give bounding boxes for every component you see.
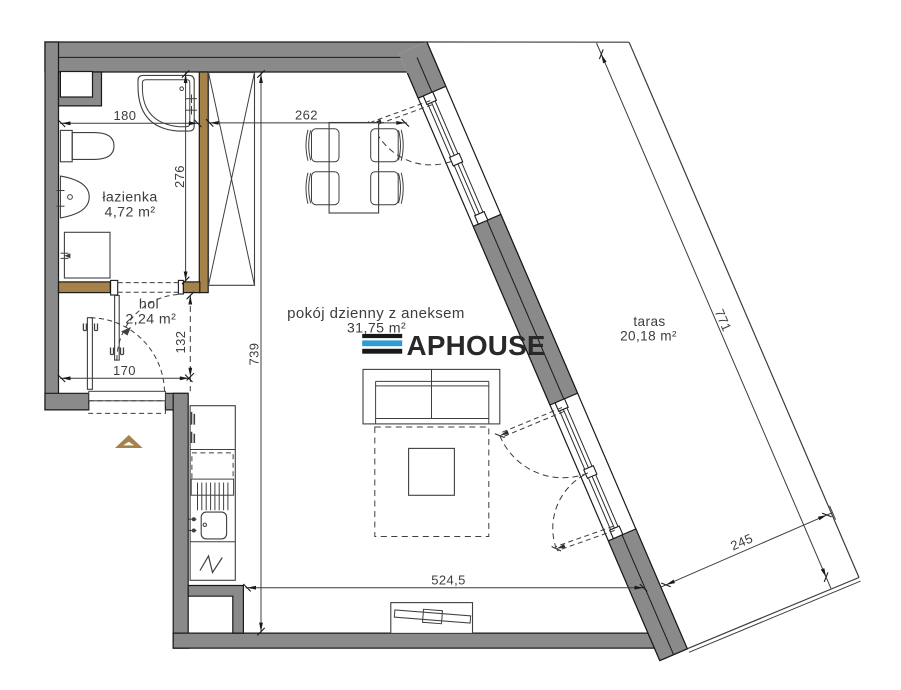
svg-text:276: 276 [172,165,187,188]
svg-text:20,18 m²: 20,18 m² [620,329,677,344]
svg-text:hol: hol [139,297,159,313]
svg-text:taras: taras [633,314,665,329]
svg-text:132: 132 [173,331,188,354]
svg-text:2,24 m²: 2,24 m² [125,312,176,328]
svg-text:170: 170 [113,363,136,378]
svg-text:739: 739 [247,343,262,366]
svg-text:180: 180 [114,108,137,123]
svg-text:pokój dzienny z aneksem: pokój dzienny z aneksem [287,305,465,322]
svg-text:262: 262 [295,108,318,123]
svg-text:łazienka: łazienka [102,190,157,206]
svg-text:APHOUSE: APHOUSE [407,330,546,361]
svg-text:4,72 m²: 4,72 m² [105,205,156,221]
svg-text:524,5: 524,5 [431,572,466,587]
